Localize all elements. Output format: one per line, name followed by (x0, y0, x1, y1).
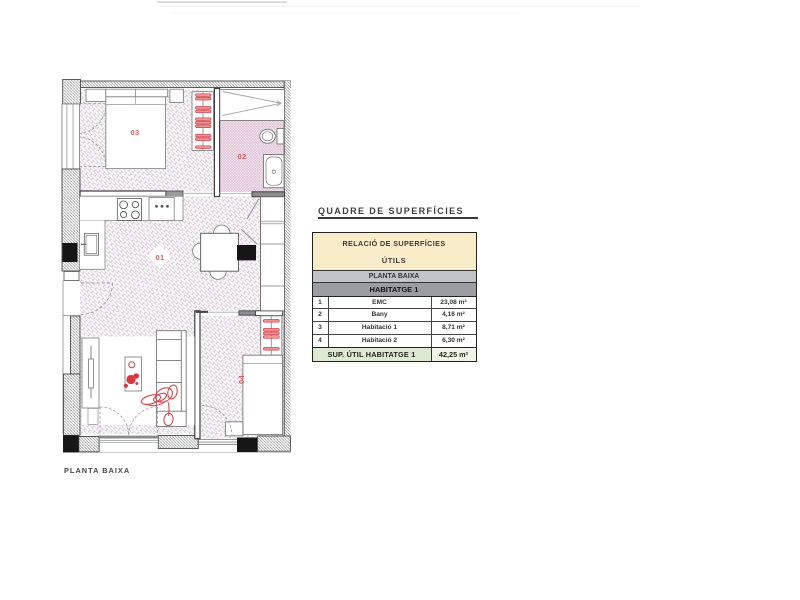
svg-text:01: 01 (156, 253, 165, 262)
svg-text:02: 02 (238, 152, 247, 161)
svg-text:03: 03 (131, 128, 140, 137)
svg-text:04: 04 (237, 375, 246, 384)
